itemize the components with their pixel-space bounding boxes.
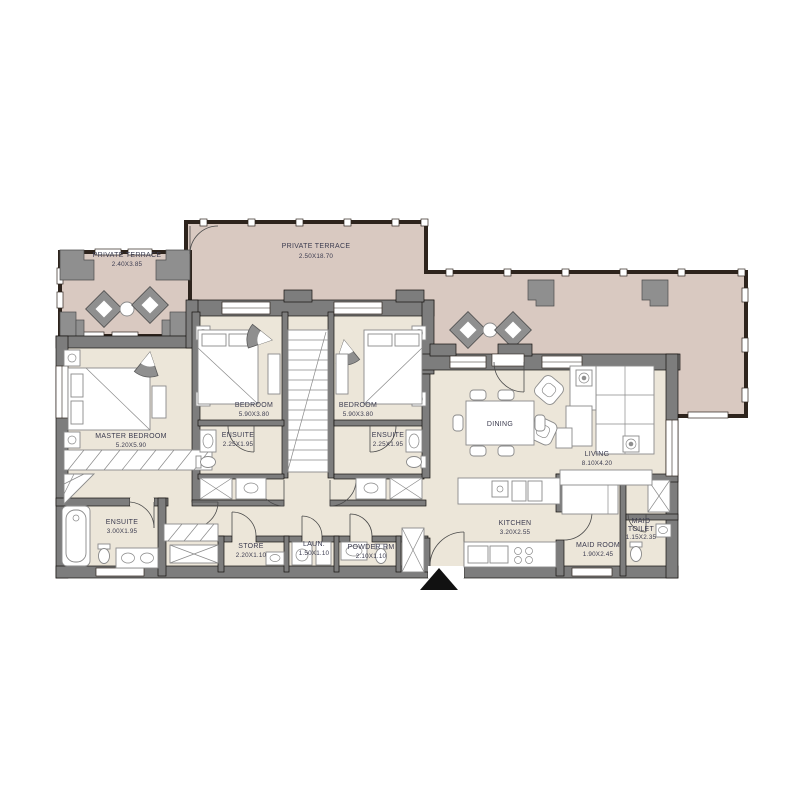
- ensuite-left-label: ENSUITE: [222, 432, 254, 439]
- bedroom-left-label: BEDROOM: [235, 402, 273, 409]
- bedroom-left-dims: 5.90X3.80: [239, 411, 270, 418]
- ensuite-right-dims: 2.25X1.95: [373, 441, 404, 448]
- laundry-dims: 1.50X1.10: [299, 550, 330, 557]
- powder-room-label: POWDER RM: [347, 544, 394, 551]
- terrace-left-dims: 2.40X3.85: [112, 261, 143, 268]
- master-bedroom-dims: 5.20X5.90: [116, 442, 147, 449]
- bedroom-right-label: BEDROOM: [339, 402, 377, 409]
- bedroom-right-bed-icon: [364, 326, 426, 406]
- ensuite-left-dims: 2.25X1.95: [223, 441, 254, 448]
- kitchen-dims: 3.20X2.55: [500, 529, 531, 536]
- desk-icon: [268, 354, 280, 394]
- maid-bed-icon: [562, 484, 618, 514]
- kitchen-counter-icon: [464, 542, 556, 567]
- maid-toilet-label: MAID: [632, 518, 651, 525]
- dresser-icon: [152, 386, 166, 418]
- plant-icon: [576, 370, 592, 386]
- dining-label: DINING: [487, 421, 513, 428]
- desk-icon: [336, 354, 348, 394]
- living-label: LIVING: [585, 451, 610, 458]
- maid-room-label: MAID ROOM: [576, 542, 620, 549]
- closet-strip-icon: [288, 330, 328, 472]
- entry-closet-icon: [402, 528, 424, 572]
- ensuite-master-dims: 3.00X1.95: [107, 528, 138, 535]
- store-label: STORE: [238, 543, 264, 550]
- kitchen-island-icon: [458, 478, 560, 504]
- floor-plan-page: PRIVATE TERRACE 2.40X3.85 PRIVATE TERRAC…: [0, 0, 800, 800]
- laundry-label: LAUN.: [303, 541, 325, 548]
- sideboard-icon: [560, 470, 652, 485]
- living-dims: 8.10X4.20: [582, 460, 613, 467]
- terrace-top-label: PRIVATE TERRACE: [282, 243, 351, 250]
- ensuite-master-label: ENSUITE: [106, 519, 138, 526]
- maid-room-dims: 1.90X2.45: [583, 551, 614, 558]
- maid-toilet-dims: 1.15X2.35: [626, 534, 657, 541]
- plant-icon: [623, 436, 639, 452]
- powder-room-dims: 2.10X1.10: [356, 553, 387, 560]
- terrace-top-dims: 2.50X18.70: [299, 253, 334, 260]
- store-cabinet-icon: [266, 552, 284, 565]
- ensuite-right-label: ENSUITE: [372, 432, 404, 439]
- terrace-left-label: PRIVATE TERRACE: [93, 252, 162, 259]
- store-dims: 2.20X1.10: [236, 552, 267, 559]
- maid-toilet-label2: TOILET: [628, 526, 655, 533]
- master-bedroom-label: MASTER BEDROOM: [95, 433, 166, 440]
- bedroom-right-dims: 5.90X3.80: [343, 411, 374, 418]
- floor-plan: PRIVATE TERRACE 2.40X3.85 PRIVATE TERRAC…: [0, 0, 800, 800]
- kitchen-label: KITCHEN: [499, 520, 532, 527]
